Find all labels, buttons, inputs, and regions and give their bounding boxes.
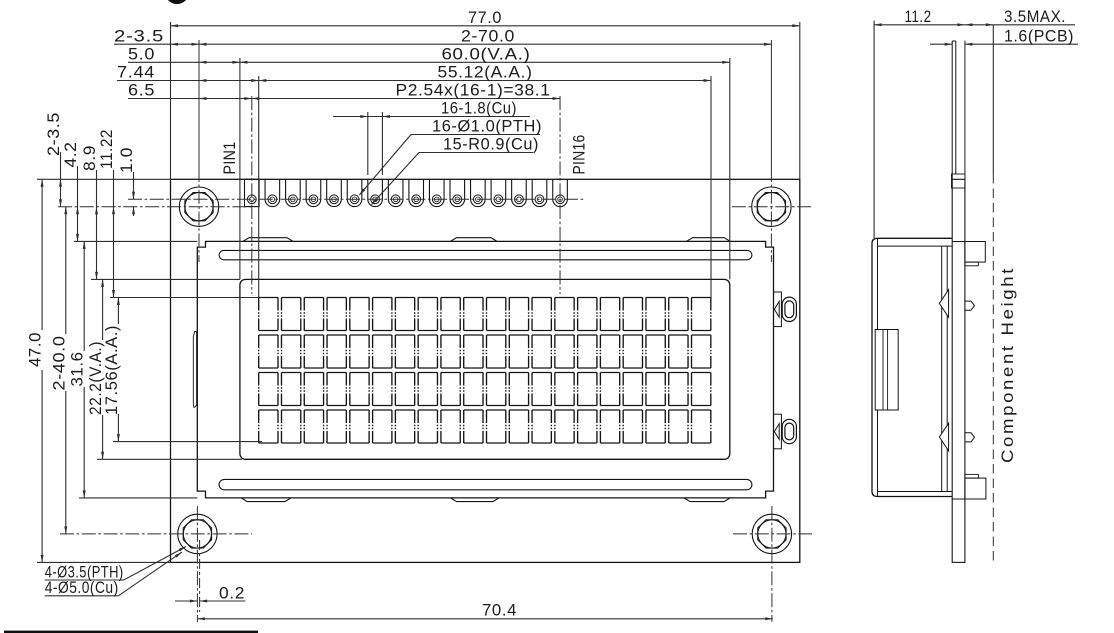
svg-text:16-Ø1.0(PTH): 16-Ø1.0(PTH) (432, 117, 542, 136)
svg-text:5.0: 5.0 (128, 45, 155, 64)
svg-text:15-R0.9(Cu): 15-R0.9(Cu) (443, 135, 539, 154)
svg-text:6.5: 6.5 (128, 81, 155, 100)
svg-text:8.9: 8.9 (80, 145, 99, 171)
svg-text:4-Ø5.0(Cu): 4-Ø5.0(Cu) (45, 578, 119, 597)
svg-text:PIN1: PIN1 (221, 142, 239, 175)
svg-text:47.0: 47.0 (26, 332, 45, 367)
svg-text:17.56(A.A.): 17.56(A.A.) (102, 325, 121, 415)
svg-text:77.0: 77.0 (468, 8, 502, 27)
svg-text:2-70.0: 2-70.0 (461, 26, 515, 45)
svg-text:2-40.0: 2-40.0 (49, 336, 68, 391)
svg-text:P2.54x(16-1)=38.1: P2.54x(16-1)=38.1 (396, 81, 551, 100)
svg-text:11.22: 11.22 (97, 129, 116, 169)
svg-text:55.12(A.A.): 55.12(A.A.) (438, 63, 533, 82)
svg-text:31.6: 31.6 (68, 352, 87, 387)
svg-text:70.4: 70.4 (482, 601, 517, 620)
svg-text:4.2: 4.2 (61, 142, 80, 168)
svg-text:3.5MAX.: 3.5MAX. (1004, 7, 1066, 26)
svg-text:1.6(PCB): 1.6(PCB) (1004, 26, 1074, 45)
svg-text:60.0(V.A.): 60.0(V.A.) (442, 45, 531, 64)
svg-text:1.0: 1.0 (117, 147, 136, 173)
svg-text:2-3.5: 2-3.5 (114, 26, 164, 45)
svg-text:0.2: 0.2 (219, 583, 245, 602)
svg-text:16-1.8(Cu): 16-1.8(Cu) (441, 99, 517, 118)
svg-text:Component Height: Component Height (998, 266, 1017, 463)
svg-text:11.2: 11.2 (905, 7, 932, 26)
svg-text:7.44: 7.44 (117, 63, 155, 82)
svg-text:PIN16: PIN16 (571, 135, 589, 175)
